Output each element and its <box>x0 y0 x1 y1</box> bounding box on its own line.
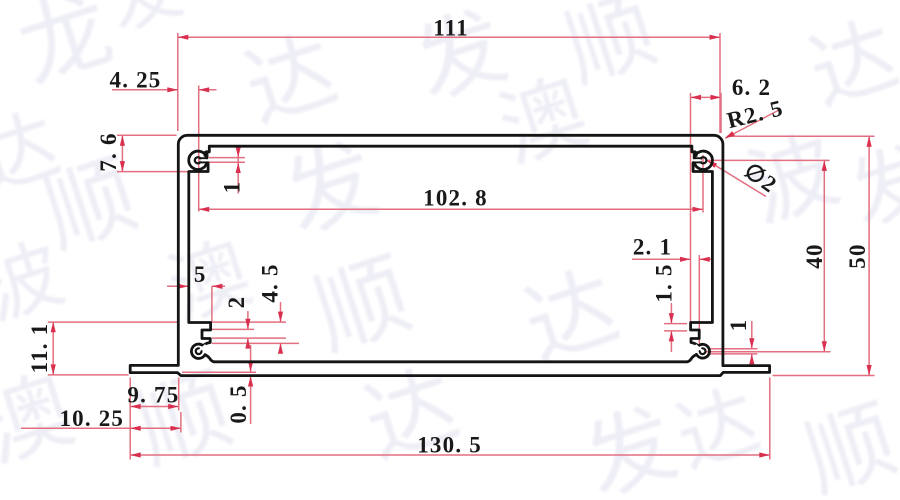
svg-text:6. 2: 6. 2 <box>732 75 771 100</box>
svg-text:40: 40 <box>802 243 827 268</box>
svg-text:达: 达 <box>354 355 470 477</box>
svg-text:发: 发 <box>840 134 900 242</box>
svg-text:0. 5: 0. 5 <box>226 384 251 423</box>
svg-text:11. 1: 11. 1 <box>27 323 52 374</box>
svg-text:102. 8: 102. 8 <box>423 186 488 211</box>
svg-text:7. 6: 7. 6 <box>96 132 121 171</box>
svg-text:顺: 顺 <box>303 243 423 370</box>
svg-text:4. 25: 4. 25 <box>110 68 162 93</box>
svg-text:130. 5: 130. 5 <box>417 432 482 457</box>
svg-text:10. 25: 10. 25 <box>59 406 124 431</box>
svg-text:1: 1 <box>726 319 751 332</box>
svg-text:2. 1: 2. 1 <box>633 234 672 259</box>
svg-text:1. 5: 1. 5 <box>652 263 677 302</box>
svg-text:50: 50 <box>845 243 870 268</box>
svg-text:龙: 龙 <box>8 0 124 101</box>
svg-text:9. 75: 9. 75 <box>127 383 179 408</box>
svg-text:顺: 顺 <box>794 392 900 500</box>
svg-text:111: 111 <box>433 16 469 41</box>
svg-text:达: 达 <box>234 22 348 141</box>
svg-text:5: 5 <box>194 262 207 287</box>
svg-text:R2. 5: R2. 5 <box>724 95 785 133</box>
svg-text:4. 5: 4. 5 <box>258 263 283 302</box>
svg-text:2: 2 <box>224 296 249 309</box>
svg-text:1: 1 <box>220 181 245 194</box>
svg-text:达: 达 <box>799 7 900 123</box>
